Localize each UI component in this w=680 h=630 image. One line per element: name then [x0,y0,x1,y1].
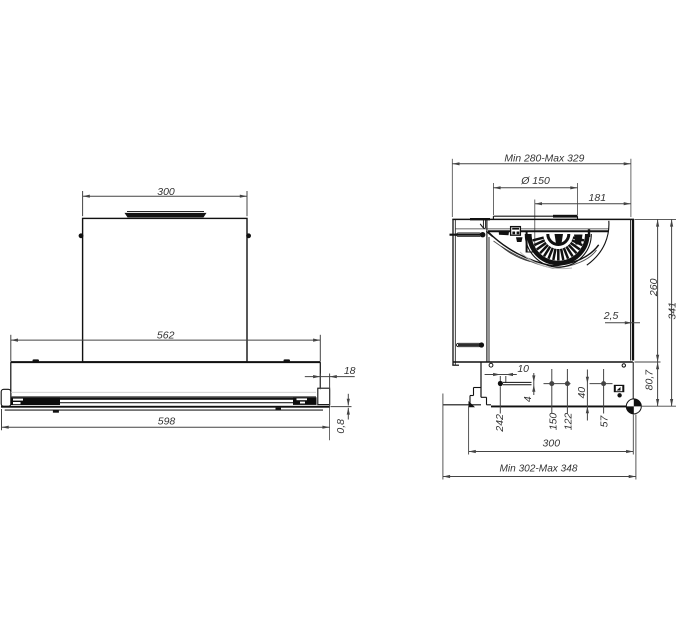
svg-text:Min 302-Max 348: Min 302-Max 348 [500,463,578,475]
svg-text:Min 280-Max 329: Min 280-Max 329 [504,153,584,165]
svg-text:181: 181 [589,192,607,204]
svg-text:242: 242 [494,414,506,433]
svg-text:150: 150 [547,413,559,431]
svg-text:4: 4 [522,396,534,402]
svg-text:Ø 150: Ø 150 [520,175,550,187]
svg-text:57: 57 [599,415,611,428]
svg-text:0,8: 0,8 [335,419,347,434]
svg-text:300: 300 [543,438,561,450]
svg-text:2,5: 2,5 [603,310,619,322]
svg-text:80,7: 80,7 [644,369,656,391]
svg-text:18: 18 [344,365,356,377]
svg-text:598: 598 [158,416,176,428]
svg-text:40: 40 [576,387,588,399]
svg-text:341: 341 [666,302,678,320]
svg-text:122: 122 [562,413,574,431]
svg-text:10: 10 [517,363,529,375]
svg-text:260: 260 [648,278,660,297]
